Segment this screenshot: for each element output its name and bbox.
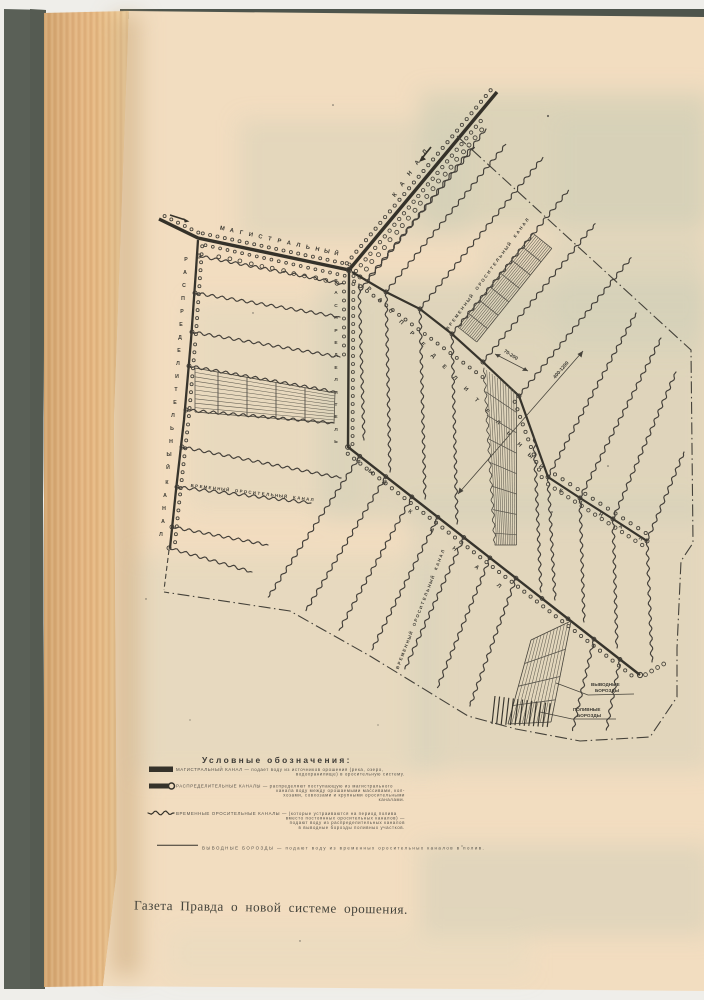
svg-text:Н: Н [162, 506, 166, 512]
svg-text:Л: Л [171, 413, 175, 419]
svg-text:И: И [253, 490, 257, 495]
svg-text:В: В [190, 483, 194, 488]
svg-text:И: И [175, 374, 179, 380]
svg-text:Л: Л [176, 361, 180, 367]
svg-text:Н: Н [301, 496, 305, 501]
svg-text:А: А [306, 496, 310, 501]
svg-text:Р: Р [184, 257, 188, 263]
svg-text:П: П [334, 315, 338, 321]
svg-text:ВЫВОДНЫЕ: ВЫВОДНЫЕ [591, 682, 620, 687]
svg-text:С: С [334, 303, 338, 309]
svg-text:С: С [182, 283, 186, 289]
svg-text:Л: Л [310, 497, 314, 502]
svg-text:Н: Н [213, 485, 217, 490]
svg-text:Е: Е [177, 348, 181, 354]
svg-text:Ь: Ь [334, 439, 338, 445]
svg-text:Й: Й [284, 494, 288, 499]
svg-text:каналами.: каналами. [379, 797, 405, 802]
svg-text:БОРОЗДЫ: БОРОЗДЫ [595, 688, 620, 693]
svg-text:А: А [183, 270, 187, 276]
svg-text:Й: Й [226, 487, 230, 492]
svg-text:С: С [248, 490, 252, 495]
svg-text:Ы: Ы [166, 452, 171, 458]
svg-text:А: А [161, 519, 165, 525]
svg-text:Е: Е [179, 322, 183, 328]
svg-text:Е: Е [173, 400, 177, 406]
svg-text:Ы: Ы [221, 486, 226, 491]
svg-text:Л: Л [159, 532, 163, 538]
svg-text:водохранилище) в оросительну: водохранилище) в оросительную систему. [296, 772, 405, 777]
svg-text:А: А [297, 495, 301, 500]
svg-text:Ь: Ь [270, 492, 274, 497]
svg-text:Н: Н [169, 439, 173, 445]
svg-text:И: И [334, 390, 338, 396]
svg-text:Р: Р [180, 309, 184, 315]
svg-text:А: А [334, 290, 338, 296]
svg-text:БОРОЗДЫ: БОРОЗДЫ [577, 713, 602, 718]
svg-text:Ь: Ь [170, 426, 174, 432]
svg-text:Т: Т [335, 402, 338, 408]
svg-text:А: А [163, 493, 167, 499]
svg-text:ВЫВОДНЫЕ БОРОЗДЫ — подают во: ВЫВОДНЫЕ БОРОЗДЫ — подают воду из времен… [202, 846, 485, 851]
svg-text:Й: Й [166, 463, 170, 471]
svg-text:Ы: Ы [279, 493, 284, 498]
svg-text:Д: Д [334, 352, 338, 358]
svg-text:Д: Д [178, 335, 182, 341]
svg-text:Л: Л [266, 492, 270, 497]
svg-text:Условные обозначения:: Условные обозначения: [202, 755, 352, 765]
svg-text:в выводные борозды поливных: в выводные борозды поливных участков. [299, 825, 405, 830]
svg-text:П: П [181, 296, 185, 302]
svg-text:ПОЛИВНЫЕ: ПОЛИВНЫЕ [573, 707, 600, 712]
